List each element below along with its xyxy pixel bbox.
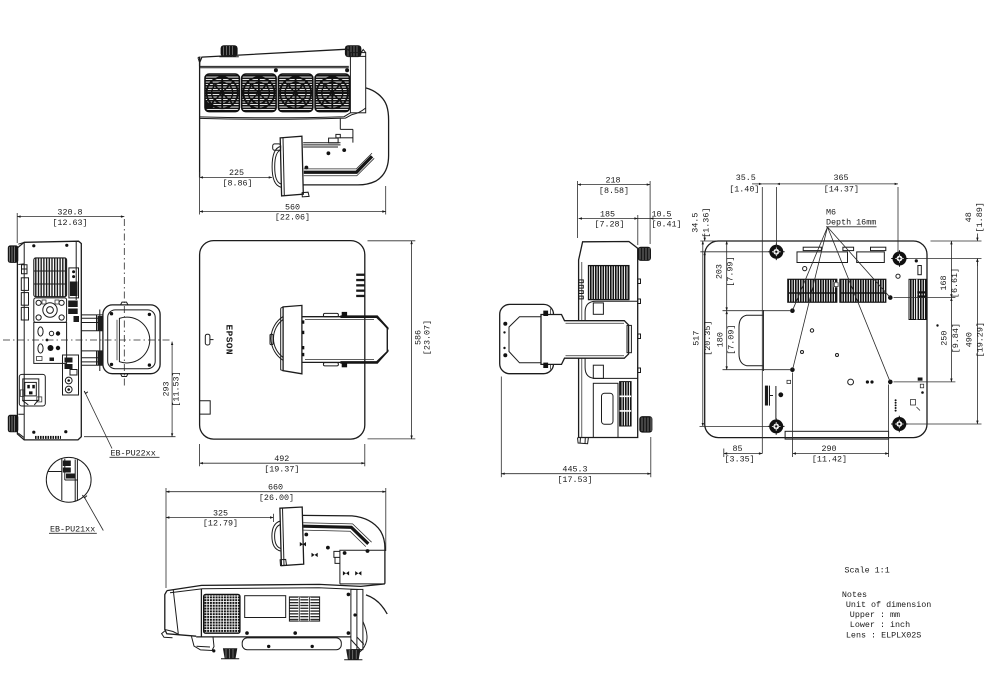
- svg-text:[1.36]: [1.36]: [702, 208, 712, 238]
- svg-text:Scale 1:1: Scale 1:1: [845, 565, 890, 575]
- svg-text:[1.89]: [1.89]: [975, 202, 985, 232]
- svg-text:48: 48: [964, 212, 974, 222]
- svg-text:Unit of dimension: Unit of dimension: [846, 600, 931, 610]
- svg-text:[17.53]: [17.53]: [557, 475, 592, 485]
- svg-text:[26.00]: [26.00]: [259, 493, 294, 503]
- svg-text:10.5: 10.5: [651, 209, 671, 219]
- svg-text:[23.07]: [23.07]: [423, 320, 433, 355]
- svg-text:[11.53]: [11.53]: [172, 371, 182, 406]
- svg-text:[19.29]: [19.29]: [976, 322, 986, 357]
- svg-text:34.5: 34.5: [691, 213, 701, 233]
- svg-text:[20.35]: [20.35]: [703, 321, 713, 356]
- svg-text:[0.41]: [0.41]: [651, 220, 681, 230]
- svg-text:85: 85: [732, 444, 742, 454]
- svg-text:492: 492: [274, 454, 289, 464]
- svg-text:[12.79]: [12.79]: [203, 519, 238, 529]
- svg-text:250: 250: [940, 331, 950, 346]
- svg-text:325: 325: [213, 508, 228, 518]
- svg-text:290: 290: [821, 444, 836, 454]
- svg-text:M6: M6: [826, 207, 836, 217]
- svg-text:[11.42]: [11.42]: [812, 455, 847, 465]
- svg-text:Upper : mm: Upper : mm: [850, 610, 900, 620]
- svg-text:[9.84]: [9.84]: [951, 323, 961, 353]
- svg-text:[8.86]: [8.86]: [222, 179, 252, 189]
- svg-text:490: 490: [965, 332, 975, 347]
- svg-text:660: 660: [268, 483, 283, 493]
- svg-text:168: 168: [939, 275, 949, 290]
- svg-text:[1.40]: [1.40]: [729, 184, 759, 194]
- svg-text:293: 293: [161, 381, 171, 396]
- svg-text:203: 203: [715, 264, 725, 279]
- svg-text:35.5: 35.5: [736, 173, 756, 183]
- svg-text:[3.35]: [3.35]: [725, 455, 755, 465]
- svg-text:[7.99]: [7.99]: [726, 257, 736, 287]
- svg-text:218: 218: [605, 175, 620, 185]
- svg-text:[7.28]: [7.28]: [594, 220, 624, 230]
- svg-text:560: 560: [285, 202, 300, 212]
- svg-text:EPSON: EPSON: [224, 325, 235, 356]
- svg-text:185: 185: [600, 209, 615, 219]
- svg-text:365: 365: [833, 173, 848, 183]
- svg-text:225: 225: [229, 168, 244, 178]
- svg-text:Notes: Notes: [842, 590, 867, 600]
- svg-text:[12.63]: [12.63]: [52, 218, 87, 228]
- svg-text:[8.58]: [8.58]: [599, 186, 629, 196]
- svg-text:[6.61]: [6.61]: [950, 268, 960, 298]
- svg-text:Lens : ELPLX02S: Lens : ELPLX02S: [846, 631, 921, 641]
- svg-text:[14.37]: [14.37]: [824, 184, 859, 194]
- svg-text:445.3: 445.3: [562, 465, 587, 475]
- svg-text:[7.09]: [7.09]: [726, 325, 736, 355]
- svg-text:Depth 16mm: Depth 16mm: [826, 218, 876, 228]
- svg-text:320.8: 320.8: [57, 207, 82, 217]
- svg-text:Lower : inch: Lower : inch: [850, 620, 910, 630]
- svg-text:[22.06]: [22.06]: [275, 213, 310, 223]
- svg-text:[19.37]: [19.37]: [264, 464, 299, 474]
- svg-text:517: 517: [692, 331, 702, 346]
- svg-text:180: 180: [715, 332, 725, 347]
